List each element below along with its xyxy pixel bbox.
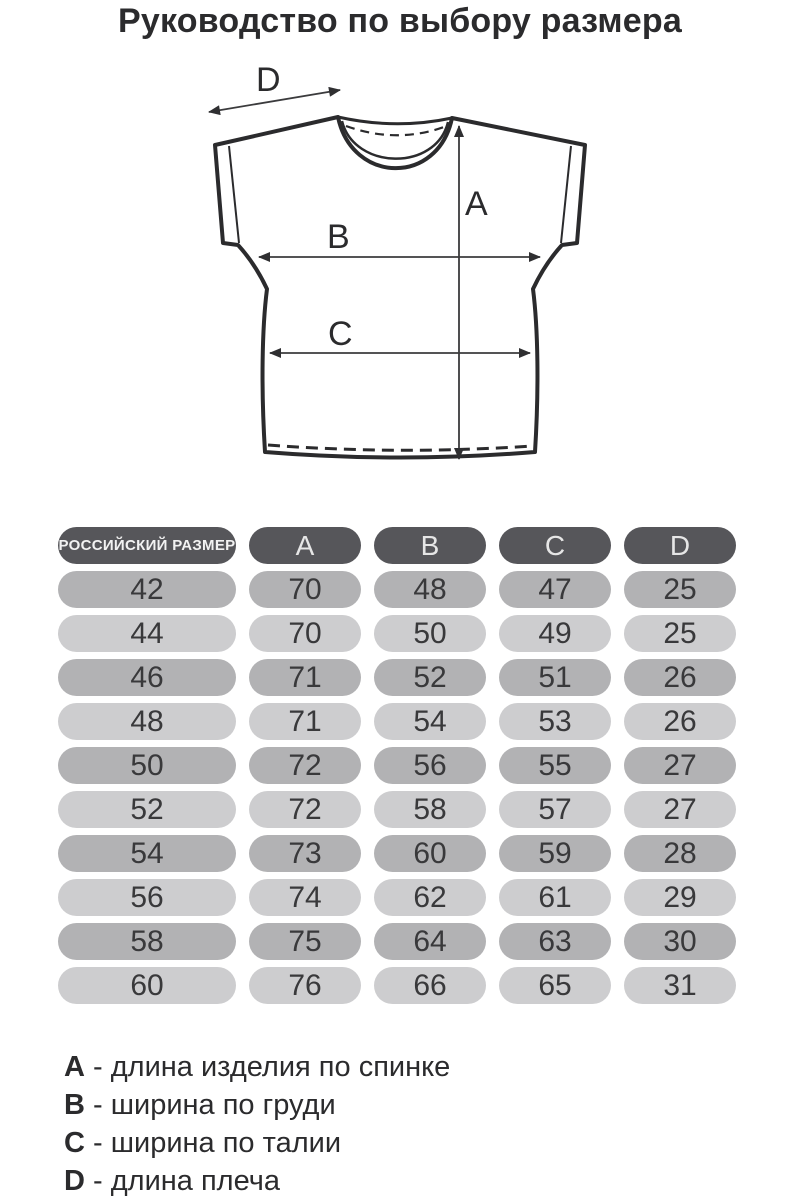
- value-cell: 62: [374, 879, 486, 916]
- tshirt-measurement-diagram: A B C D: [180, 58, 620, 506]
- size-cell: 52: [58, 791, 236, 828]
- legend-line-b: B - ширина по груди: [64, 1086, 450, 1124]
- value-cell: 31: [624, 967, 736, 1004]
- value-cell: 63: [499, 923, 611, 960]
- value-cell: 26: [624, 659, 736, 696]
- value-cell: 27: [624, 747, 736, 784]
- value-cell: 47: [499, 571, 611, 608]
- legend-desc-d: - длина плеча: [93, 1165, 280, 1198]
- value-cell: 61: [499, 879, 611, 916]
- legend-desc-a: - длина изделия по спинке: [93, 1051, 450, 1084]
- value-cell: 54: [374, 703, 486, 740]
- column-header-b: B: [374, 527, 486, 564]
- value-cell: 71: [249, 659, 361, 696]
- value-cell: 73: [249, 835, 361, 872]
- value-cell: 71: [249, 703, 361, 740]
- column-header-russian-size: РОССИЙСКИЙ РАЗМЕР: [58, 527, 236, 564]
- value-cell: 29: [624, 879, 736, 916]
- value-cell: 25: [624, 571, 736, 608]
- tshirt-outline: [215, 117, 585, 458]
- legend-desc-c: - ширина по талии: [93, 1127, 341, 1160]
- value-cell: 66: [374, 967, 486, 1004]
- size-cell: 60: [58, 967, 236, 1004]
- dimension-label-a: A: [465, 185, 488, 223]
- value-cell: 70: [249, 571, 361, 608]
- column-header-c: C: [499, 527, 611, 564]
- size-cell: 50: [58, 747, 236, 784]
- value-cell: 76: [249, 967, 361, 1004]
- value-cell: 59: [499, 835, 611, 872]
- value-cell: 53: [499, 703, 611, 740]
- value-cell: 30: [624, 923, 736, 960]
- size-table: РОССИЙСКИЙ РАЗМЕР A B C D 42704847254470…: [58, 527, 736, 1004]
- value-cell: 28: [624, 835, 736, 872]
- size-cell: 58: [58, 923, 236, 960]
- value-cell: 49: [499, 615, 611, 652]
- legend-desc-b: - ширина по груди: [93, 1089, 336, 1122]
- value-cell: 70: [249, 615, 361, 652]
- value-cell: 50: [374, 615, 486, 652]
- measurement-legend: A - длина изделия по спинке B - ширина п…: [64, 1048, 450, 1200]
- legend-key-a: A: [64, 1051, 85, 1084]
- value-cell: 26: [624, 703, 736, 740]
- value-cell: 72: [249, 747, 361, 784]
- tshirt-diagram-svg: A B C D: [180, 58, 620, 506]
- value-cell: 57: [499, 791, 611, 828]
- value-cell: 51: [499, 659, 611, 696]
- size-cell: 54: [58, 835, 236, 872]
- size-cell: 44: [58, 615, 236, 652]
- value-cell: 74: [249, 879, 361, 916]
- collar-stitch-dashed-line: [346, 126, 444, 135]
- value-cell: 25: [624, 615, 736, 652]
- legend-key-b: B: [64, 1089, 85, 1122]
- value-cell: 65: [499, 967, 611, 1004]
- legend-key-c: C: [64, 1127, 85, 1160]
- value-cell: 75: [249, 923, 361, 960]
- value-cell: 64: [374, 923, 486, 960]
- column-header-d: D: [624, 527, 736, 564]
- value-cell: 72: [249, 791, 361, 828]
- page-title: Руководство по выбору размера: [0, 2, 800, 41]
- value-cell: 58: [374, 791, 486, 828]
- legend-line-a: A - длина изделия по спинке: [64, 1048, 450, 1086]
- value-cell: 60: [374, 835, 486, 872]
- legend-line-d: D - длина плеча: [64, 1162, 450, 1200]
- column-header-a: A: [249, 527, 361, 564]
- value-cell: 48: [374, 571, 486, 608]
- dimension-label-b: B: [327, 218, 350, 256]
- value-cell: 55: [499, 747, 611, 784]
- value-cell: 52: [374, 659, 486, 696]
- dimension-label-d: D: [256, 61, 281, 99]
- size-cell: 42: [58, 571, 236, 608]
- dimension-label-c: C: [328, 315, 353, 353]
- value-cell: 56: [374, 747, 486, 784]
- legend-key-d: D: [64, 1165, 85, 1198]
- legend-line-c: C - ширина по талии: [64, 1124, 450, 1162]
- size-cell: 48: [58, 703, 236, 740]
- value-cell: 27: [624, 791, 736, 828]
- size-cell: 56: [58, 879, 236, 916]
- size-cell: 46: [58, 659, 236, 696]
- collar-back-line: [338, 117, 452, 124]
